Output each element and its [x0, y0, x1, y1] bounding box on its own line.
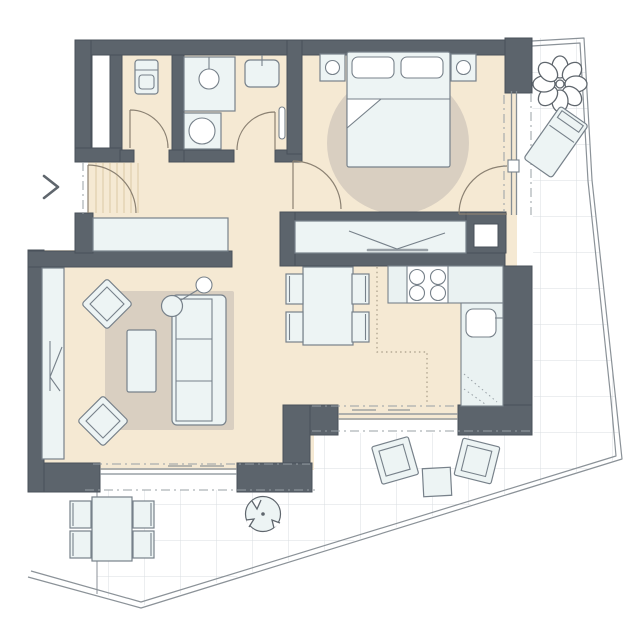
nightstand-left-lamp [326, 61, 340, 75]
floorplan-page [0, 0, 640, 640]
nightstand-right-lamp [457, 61, 471, 75]
wall-band-piece-2 [169, 150, 184, 162]
hall-wardrobe [295, 221, 466, 253]
wall-hinge-pier [280, 212, 295, 266]
flower-plant [533, 56, 587, 112]
cooktop [407, 266, 448, 303]
wall-niche-right [110, 55, 122, 162]
kitchen-sink [466, 309, 496, 337]
coffee-table [127, 330, 156, 392]
wall-entry-left [75, 40, 91, 162]
wall-entry-lower-block [75, 213, 93, 253]
terrace-side-table [422, 467, 451, 496]
wall-bedroom-right [505, 38, 532, 93]
hall-sideboard [93, 218, 228, 251]
wall-niche [92, 55, 112, 151]
dining-chair-4 [352, 312, 369, 342]
dining-chair-3 [352, 274, 369, 304]
sofa [172, 295, 226, 425]
washing-machine-drum [189, 118, 215, 144]
shower-head [199, 69, 219, 89]
wardrobe-body [295, 221, 466, 253]
living-tall-cabinet [42, 268, 64, 459]
towel-radiator [279, 107, 285, 139]
floor-lamp-shade [196, 277, 212, 293]
wall-closet-top-band [295, 212, 466, 221]
pillow-left [352, 57, 394, 78]
wall-band-piece-3 [184, 150, 234, 162]
terrace-armchair-right [454, 438, 500, 484]
round-shrub [246, 497, 281, 532]
floorplan-svg [0, 0, 640, 640]
storage-room-furniture [135, 60, 158, 94]
dining-chair-1 [286, 274, 303, 304]
wall-niche-bottom [75, 148, 122, 162]
dining-table [303, 267, 353, 345]
floor-lamp-base [162, 296, 183, 317]
dining-chair-2 [286, 312, 303, 342]
pillow-right [401, 57, 443, 78]
wall-storage-bath-divider [172, 55, 184, 162]
floor-hall [88, 158, 302, 218]
wall-band-piece-1 [120, 150, 134, 162]
wall-closet-bottom-band [295, 253, 505, 266]
tall-cabinet-body [42, 268, 64, 459]
shaft-column-void [474, 224, 498, 247]
wall-bath-bedroom [287, 40, 302, 154]
wall-hall-bottom-band [28, 251, 232, 267]
outdoor-table [92, 497, 132, 561]
wall-living-bottom-right [237, 463, 312, 492]
sofa-body [172, 295, 226, 425]
bedroom-glass-mullion [508, 160, 519, 172]
